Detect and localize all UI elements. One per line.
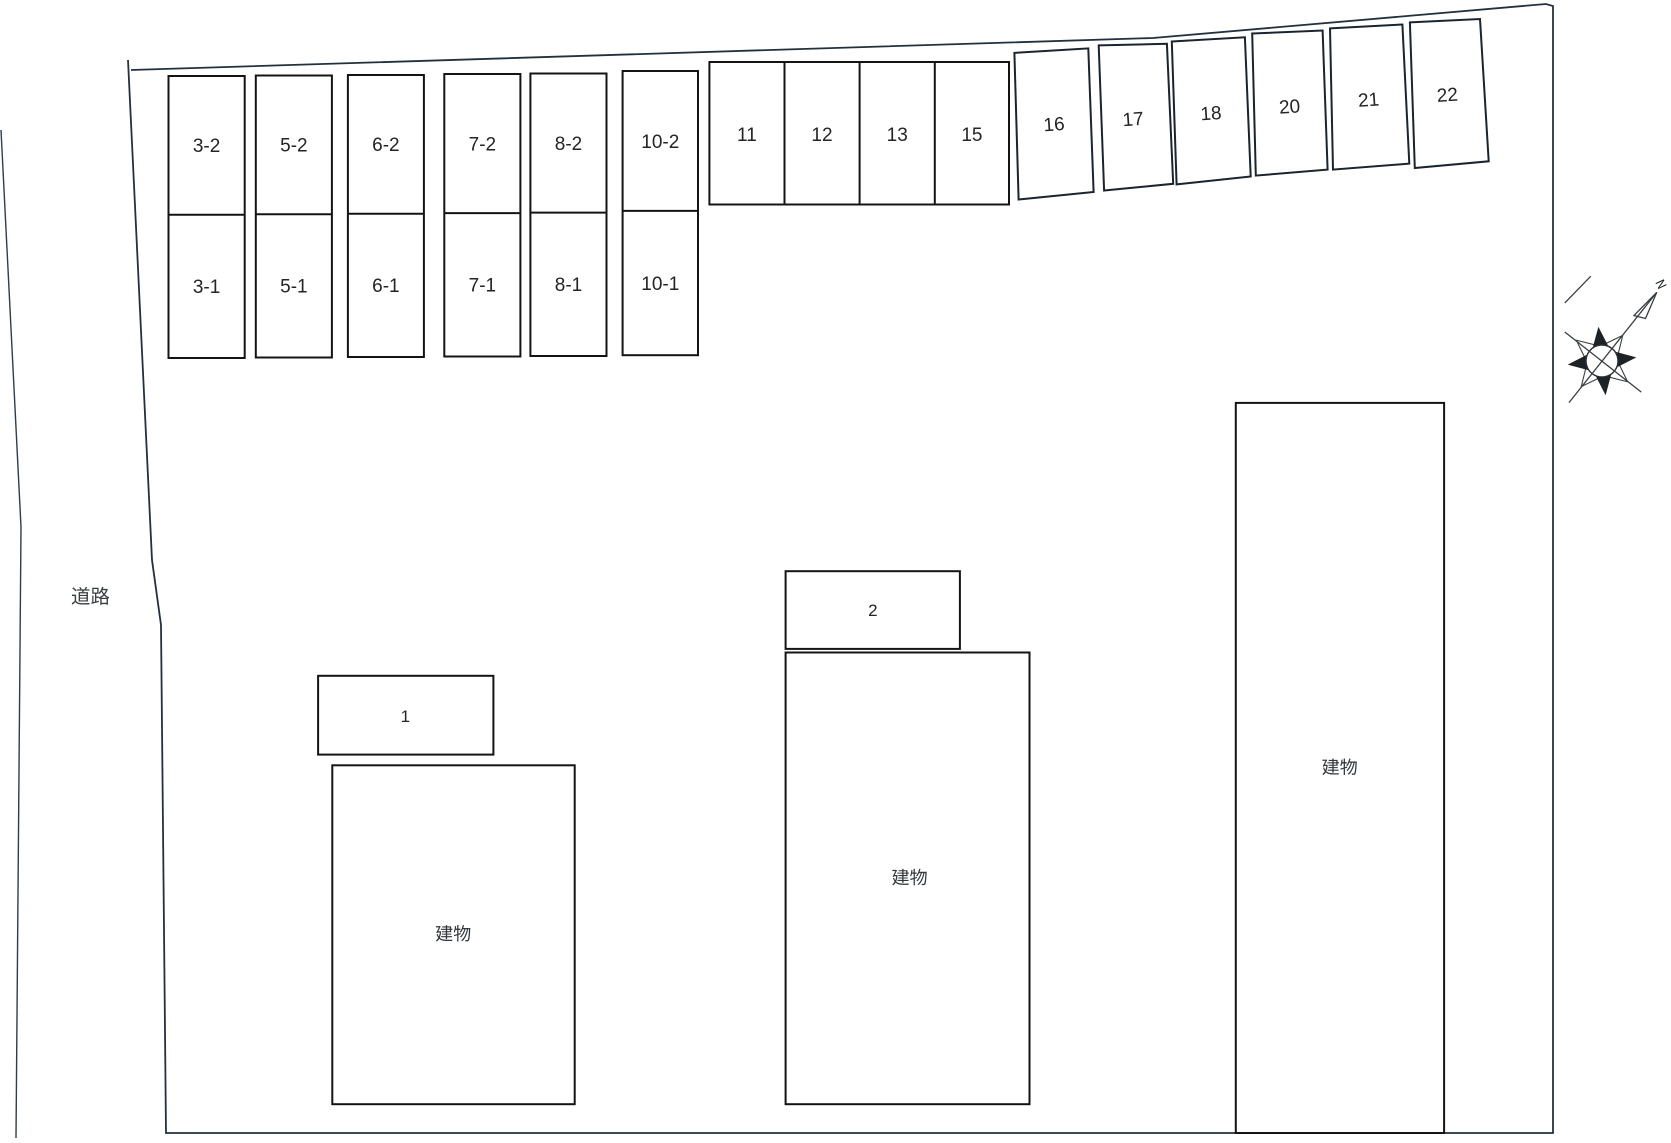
svg-text:22: 22 (1436, 85, 1459, 107)
svg-text:13: 13 (887, 125, 908, 146)
svg-text:3-1: 3-1 (193, 277, 220, 298)
svg-text:20: 20 (1278, 96, 1301, 118)
svg-text:8-2: 8-2 (555, 134, 582, 155)
svg-text:15: 15 (961, 125, 982, 146)
svg-text:1: 1 (401, 707, 410, 726)
svg-text:16: 16 (1043, 114, 1066, 136)
svg-text:10-2: 10-2 (641, 132, 679, 153)
svg-text:11: 11 (737, 125, 757, 146)
svg-text:7-2: 7-2 (469, 134, 496, 155)
svg-text:6-2: 6-2 (372, 135, 399, 156)
svg-text:17: 17 (1122, 109, 1145, 131)
svg-text:2: 2 (868, 601, 877, 620)
svg-text:10-1: 10-1 (641, 274, 679, 295)
svg-text:5-1: 5-1 (280, 277, 307, 298)
svg-text:12: 12 (811, 125, 832, 146)
svg-text:5-2: 5-2 (280, 136, 307, 157)
svg-text:3-2: 3-2 (193, 136, 220, 157)
svg-text:6-1: 6-1 (372, 276, 399, 297)
svg-text:8-1: 8-1 (555, 275, 582, 296)
svg-text:21: 21 (1357, 89, 1380, 111)
svg-text:18: 18 (1200, 103, 1223, 125)
svg-text:7-1: 7-1 (469, 276, 496, 297)
